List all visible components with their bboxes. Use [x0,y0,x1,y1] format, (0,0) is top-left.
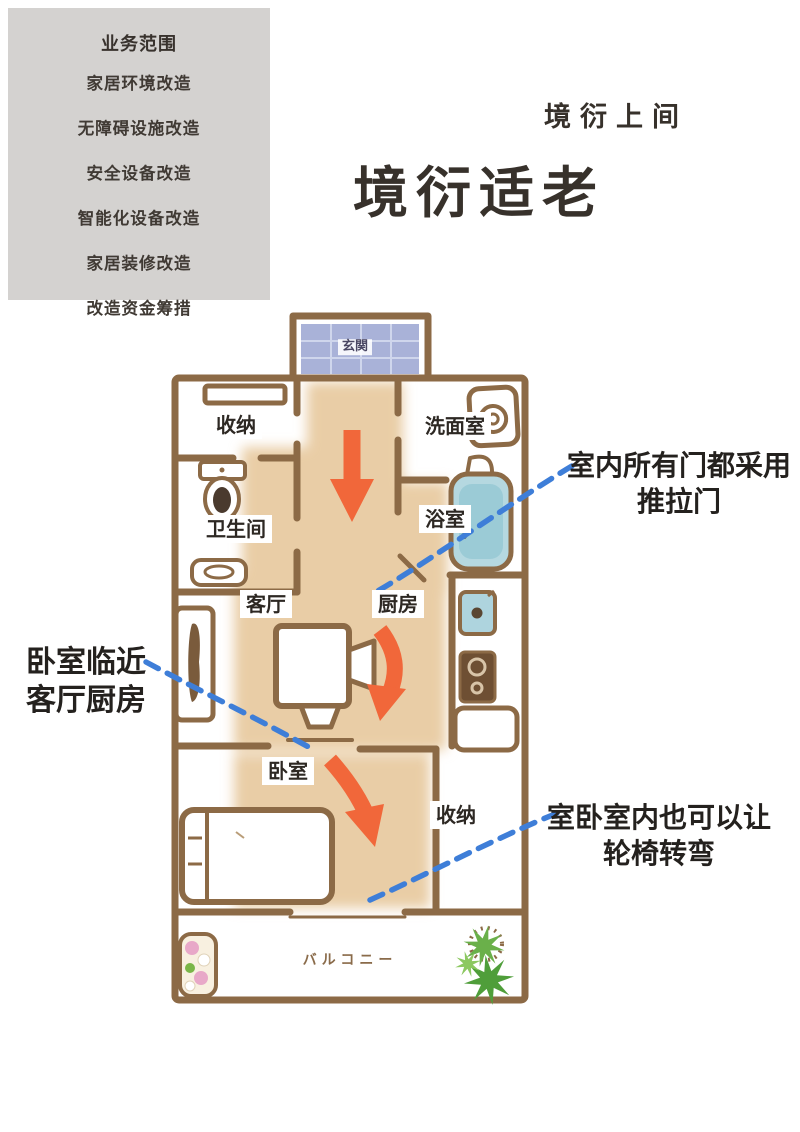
service-item: 改造资金筹措 [87,295,192,319]
service-scope-panel: 业务范围 家居环境改造 无障碍设施改造 安全设备改造 智能化设备改造 家居装修改… [8,8,270,300]
room-label-storage-top: 收纳 [210,411,262,439]
service-item: 无障碍设施改造 [78,115,201,139]
room-label-kitchen: 厨房 [372,590,424,618]
toilet-icon [200,462,245,520]
annotation-line: 卧室临近 [26,644,146,682]
counter-icon [455,708,517,750]
service-item: 安全设备改造 [87,160,192,184]
page-title: 境衍适老 [353,148,605,228]
annotation-line: 推拉门 [567,484,791,520]
green-plant-icon [450,921,518,1008]
room-label-toilet: 卫生间 [200,515,272,543]
room-label-entrance: 玄関 [338,339,372,355]
annotation-line: 客厅厨房 [26,682,146,720]
service-item: 家居装修改造 [87,250,192,274]
annotation-line: 室卧室内也可以让 [547,800,771,836]
service-item: 智能化设备改造 [78,205,201,229]
annotation-wheelchair: 室卧室内也可以让 轮椅转弯 [547,800,771,872]
annotation-bedroom-near: 卧室临近 客厅厨房 [26,644,146,721]
cabinet-icon [176,608,213,720]
room-label-washroom: 洗面室 [419,412,491,440]
room-label-storage-bottom: 收纳 [430,801,482,829]
annotation-line: 室内所有门都采用 [567,448,791,484]
room-label-bathroom: 浴室 [419,505,471,533]
stove-icon [460,652,495,702]
annotation-sliding-doors: 室内所有门都采用 推拉门 [567,448,791,520]
brand-name: 境衍上间 [544,95,688,134]
room-label-balcony: バルコニー [297,951,404,972]
room-label-living: 客厅 [240,590,292,618]
flower-plant-icon [180,934,216,996]
annotation-line: 轮椅转弯 [547,836,771,872]
kitchen-sink-icon [460,591,495,634]
sink-icon [192,560,246,585]
room-label-bedroom: 卧室 [262,757,314,785]
poster-page: 业务范围 家居环境改造 无障碍设施改造 安全设备改造 智能化设备改造 家居装修改… [0,0,800,1132]
service-scope-header: 业务范围 [101,30,177,56]
service-item: 家居环境改造 [87,70,192,94]
